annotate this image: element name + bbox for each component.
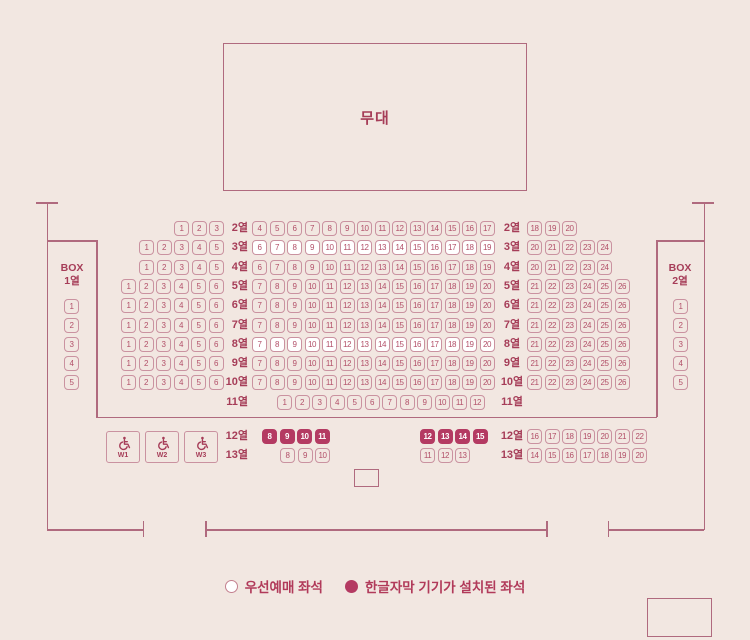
wheelchair-icon [154, 436, 171, 451]
stage: 무대 [223, 43, 527, 191]
seat-7-18[interactable]: 18 [445, 318, 460, 333]
seat-8-3[interactable]: 3 [156, 337, 171, 352]
seat-group: 212223242526 [527, 337, 630, 352]
seat-3-8[interactable]: 8 [287, 240, 302, 255]
seat-4-11[interactable]: 11 [340, 260, 355, 275]
seat-10-13[interactable]: 13 [357, 375, 372, 390]
seat-4-7[interactable]: 7 [270, 260, 285, 275]
seat-10-11[interactable]: 11 [322, 375, 337, 390]
seat-9-16[interactable]: 16 [410, 356, 425, 371]
wheelchair-seat-w1[interactable]: W1 [106, 431, 140, 463]
seat-row-8: 8열8열123456789101112131415161718192021222… [0, 337, 750, 352]
seat-7-5[interactable]: 5 [191, 318, 206, 333]
seat-11-8[interactable]: 8 [400, 395, 415, 410]
seat-5-7[interactable]: 7 [252, 279, 267, 294]
wheelchair-seats: W1W2W3 [0, 431, 750, 463]
row-label-right-2: 2열 [498, 221, 526, 236]
seat-8-5[interactable]: 5 [191, 337, 206, 352]
seat-11-7[interactable]: 7 [382, 395, 397, 410]
seat-4-3[interactable]: 3 [174, 260, 189, 275]
seat-7-8[interactable]: 8 [270, 318, 285, 333]
seat-6-17[interactable]: 17 [427, 298, 442, 313]
priority-seat-icon [225, 580, 238, 593]
seat-6-8[interactable]: 8 [270, 298, 285, 313]
seat-6-14[interactable]: 14 [375, 298, 390, 313]
seat-6-7[interactable]: 7 [252, 298, 267, 313]
wheelchair-seat-label: W2 [157, 452, 168, 459]
seat-5-16[interactable]: 16 [410, 279, 425, 294]
seat-11-5[interactable]: 5 [347, 395, 362, 410]
wall-bottom-center [205, 529, 546, 531]
seat-7-23[interactable]: 23 [562, 318, 577, 333]
seat-10-3[interactable]: 3 [156, 375, 171, 390]
wall-bottom-right [608, 529, 704, 531]
seat-10-1[interactable]: 1 [121, 375, 136, 390]
seat-10-25[interactable]: 25 [597, 375, 612, 390]
seat-10-24[interactable]: 24 [580, 375, 595, 390]
seat-4-19[interactable]: 19 [480, 260, 495, 275]
seat-8-20[interactable]: 20 [480, 337, 495, 352]
seat-4-9[interactable]: 9 [305, 260, 320, 275]
seat-group: 123456 [121, 356, 224, 371]
seat-6-24[interactable]: 24 [580, 298, 595, 313]
seat-7-4[interactable]: 4 [174, 318, 189, 333]
seat-7-26[interactable]: 26 [615, 318, 630, 333]
seat-11-9[interactable]: 9 [417, 395, 432, 410]
seat-10-23[interactable]: 23 [562, 375, 577, 390]
seat-6-21[interactable]: 21 [527, 298, 542, 313]
seat-6-9[interactable]: 9 [287, 298, 302, 313]
seat-4-23[interactable]: 23 [580, 260, 595, 275]
seat-2-20[interactable]: 20 [562, 221, 577, 236]
seat-3-21[interactable]: 21 [545, 240, 560, 255]
seat-4-1[interactable]: 1 [139, 260, 154, 275]
seat-10-7[interactable]: 7 [252, 375, 267, 390]
wheelchair-seat-label: W1 [118, 452, 129, 459]
legend: 우선예매 좌석 한글자막 기기가 설치된 좌석 [0, 576, 750, 596]
row-label-right-6: 6열 [498, 298, 526, 313]
seat-2-3[interactable]: 3 [209, 221, 224, 236]
seat-7-12[interactable]: 12 [340, 318, 355, 333]
seat-row-10: 10열10열1234567891011121314151617181920212… [0, 375, 750, 390]
seat-10-5[interactable]: 5 [191, 375, 206, 390]
seat-9-12[interactable]: 12 [340, 356, 355, 371]
seat-6-3[interactable]: 3 [156, 298, 171, 313]
seat-10-9[interactable]: 9 [287, 375, 302, 390]
seat-11-10[interactable]: 10 [435, 395, 450, 410]
seat-4-6[interactable]: 6 [252, 260, 267, 275]
seat-group: 181920 [527, 221, 577, 236]
seat-5-21[interactable]: 21 [527, 279, 542, 294]
seat-7-21[interactable]: 21 [527, 318, 542, 333]
seat-5-8[interactable]: 8 [270, 279, 285, 294]
wall-tick-3 [546, 521, 548, 537]
seat-6-1[interactable]: 1 [121, 298, 136, 313]
seat-3-16[interactable]: 16 [427, 240, 442, 255]
seat-10-8[interactable]: 8 [270, 375, 285, 390]
seat-5-10[interactable]: 10 [305, 279, 320, 294]
seat-6-26[interactable]: 26 [615, 298, 630, 313]
seat-2-18[interactable]: 18 [527, 221, 542, 236]
seat-5-2[interactable]: 2 [139, 279, 154, 294]
seat-group: 123 [174, 221, 224, 236]
seat-5-17[interactable]: 17 [427, 279, 442, 294]
seat-row-6: 6열6열123456789101112131415161718192021222… [0, 298, 750, 313]
seat-8-15[interactable]: 15 [392, 337, 407, 352]
seat-6-5[interactable]: 5 [191, 298, 206, 313]
seat-7-3[interactable]: 3 [156, 318, 171, 333]
seat-9-14[interactable]: 14 [375, 356, 390, 371]
seat-4-12[interactable]: 12 [357, 260, 372, 275]
seat-9-18[interactable]: 18 [445, 356, 460, 371]
wall-bottom-left [47, 529, 143, 531]
seat-5-9[interactable]: 9 [287, 279, 302, 294]
seat-8-6[interactable]: 6 [209, 337, 224, 352]
seat-10-2[interactable]: 2 [139, 375, 154, 390]
seat-3-5[interactable]: 5 [209, 240, 224, 255]
seat-4-21[interactable]: 21 [545, 260, 560, 275]
wall-right-top-tick [692, 202, 714, 204]
seat-10-4[interactable]: 4 [174, 375, 189, 390]
legend-subtitle-device: 한글자막 기기가 설치된 좌석 [345, 576, 525, 596]
seat-9-20[interactable]: 20 [480, 356, 495, 371]
seat-3-20[interactable]: 20 [527, 240, 542, 255]
seat-6-10[interactable]: 10 [305, 298, 320, 313]
seat-3-3[interactable]: 3 [174, 240, 189, 255]
seat-9-23[interactable]: 23 [562, 356, 577, 371]
seat-7-16[interactable]: 16 [410, 318, 425, 333]
seat-5-18[interactable]: 18 [445, 279, 460, 294]
seat-5-25[interactable]: 25 [597, 279, 612, 294]
seat-5-23[interactable]: 23 [562, 279, 577, 294]
console-marker [354, 469, 379, 487]
legend-subtitle-label: 한글자막 기기가 설치된 좌석 [365, 576, 525, 596]
seat-group: 7891011121314151617181920 [252, 279, 495, 294]
seat-10-10[interactable]: 10 [305, 375, 320, 390]
seat-7-13[interactable]: 13 [357, 318, 372, 333]
seat-8-18[interactable]: 18 [445, 337, 460, 352]
seat-3-23[interactable]: 23 [580, 240, 595, 255]
seat-10-15[interactable]: 15 [392, 375, 407, 390]
seat-9-4[interactable]: 4 [174, 356, 189, 371]
seat-5-11[interactable]: 11 [322, 279, 337, 294]
seat-6-19[interactable]: 19 [462, 298, 477, 313]
seat-group: 123456 [121, 375, 224, 390]
seat-6-15[interactable]: 15 [392, 298, 407, 313]
seat-3-10[interactable]: 10 [322, 240, 337, 255]
seat-4-10[interactable]: 10 [322, 260, 337, 275]
seat-4-2[interactable]: 2 [157, 260, 172, 275]
seat-6-23[interactable]: 23 [562, 298, 577, 313]
seat-9-13[interactable]: 13 [357, 356, 372, 371]
seat-10-26[interactable]: 26 [615, 375, 630, 390]
seat-7-20[interactable]: 20 [480, 318, 495, 333]
seat-group: 12345 [139, 240, 224, 255]
seat-5-5[interactable]: 5 [191, 279, 206, 294]
seat-3-18[interactable]: 18 [462, 240, 477, 255]
seat-8-24[interactable]: 24 [580, 337, 595, 352]
seat-8-10[interactable]: 10 [305, 337, 320, 352]
seat-6-13[interactable]: 13 [357, 298, 372, 313]
wheelchair-seat-w3[interactable]: W3 [184, 431, 218, 463]
seat-8-14[interactable]: 14 [375, 337, 390, 352]
seat-8-1[interactable]: 1 [121, 337, 136, 352]
seat-group: 678910111213141516171819 [252, 240, 495, 255]
seat-9-17[interactable]: 17 [427, 356, 442, 371]
seat-9-24[interactable]: 24 [580, 356, 595, 371]
seat-3-1[interactable]: 1 [139, 240, 154, 255]
legend-priority-label: 우선예매 좌석 [245, 576, 323, 596]
seat-7-19[interactable]: 19 [462, 318, 477, 333]
seat-11-3[interactable]: 3 [312, 395, 327, 410]
seat-4-14[interactable]: 14 [392, 260, 407, 275]
seat-5-3[interactable]: 3 [156, 279, 171, 294]
seat-2-17[interactable]: 17 [480, 221, 495, 236]
seat-5-4[interactable]: 4 [174, 279, 189, 294]
seat-4-24[interactable]: 24 [597, 260, 612, 275]
seat-8-11[interactable]: 11 [322, 337, 337, 352]
seat-6-6[interactable]: 6 [209, 298, 224, 313]
seat-group: 12345 [139, 260, 224, 275]
seat-8-9[interactable]: 9 [287, 337, 302, 352]
seat-9-19[interactable]: 19 [462, 356, 477, 371]
seat-8-19[interactable]: 19 [462, 337, 477, 352]
seat-9-11[interactable]: 11 [322, 356, 337, 371]
seat-10-19[interactable]: 19 [462, 375, 477, 390]
seat-5-19[interactable]: 19 [462, 279, 477, 294]
seat-2-4[interactable]: 4 [252, 221, 267, 236]
seat-9-7[interactable]: 7 [252, 356, 267, 371]
seat-4-5[interactable]: 5 [209, 260, 224, 275]
seat-9-26[interactable]: 26 [615, 356, 630, 371]
seat-4-20[interactable]: 20 [527, 260, 542, 275]
seat-2-6[interactable]: 6 [287, 221, 302, 236]
seat-5-13[interactable]: 13 [357, 279, 372, 294]
seat-row-4: 4열4열123456789101112131415161718192021222… [0, 260, 750, 275]
seat-10-6[interactable]: 6 [209, 375, 224, 390]
seat-8-22[interactable]: 22 [545, 337, 560, 352]
seat-6-25[interactable]: 25 [597, 298, 612, 313]
seat-8-8[interactable]: 8 [270, 337, 285, 352]
seat-4-18[interactable]: 18 [462, 260, 477, 275]
seat-6-18[interactable]: 18 [445, 298, 460, 313]
seat-2-15[interactable]: 15 [445, 221, 460, 236]
wall-tick-1 [143, 521, 145, 537]
seat-10-16[interactable]: 16 [410, 375, 425, 390]
seat-group: 212223242526 [527, 375, 630, 390]
seat-7-14[interactable]: 14 [375, 318, 390, 333]
seat-9-1[interactable]: 1 [121, 356, 136, 371]
seat-10-20[interactable]: 20 [480, 375, 495, 390]
seat-4-17[interactable]: 17 [445, 260, 460, 275]
seat-group: 7891011121314151617181920 [252, 318, 495, 333]
seat-11-1[interactable]: 1 [277, 395, 292, 410]
seat-11-2[interactable]: 2 [295, 395, 310, 410]
seat-8-17[interactable]: 17 [427, 337, 442, 352]
wheelchair-icon [193, 436, 210, 451]
seat-3-19[interactable]: 19 [480, 240, 495, 255]
seat-7-6[interactable]: 6 [209, 318, 224, 333]
seat-9-25[interactable]: 25 [597, 356, 612, 371]
seat-8-16[interactable]: 16 [410, 337, 425, 352]
wheelchair-seat-w2[interactable]: W2 [145, 431, 179, 463]
seat-2-1[interactable]: 1 [174, 221, 189, 236]
seat-2-5[interactable]: 5 [270, 221, 285, 236]
seat-7-25[interactable]: 25 [597, 318, 612, 333]
seat-8-2[interactable]: 2 [139, 337, 154, 352]
seat-5-26[interactable]: 26 [615, 279, 630, 294]
seat-2-10[interactable]: 10 [357, 221, 372, 236]
seat-4-8[interactable]: 8 [287, 260, 302, 275]
seat-9-9[interactable]: 9 [287, 356, 302, 371]
seat-8-23[interactable]: 23 [562, 337, 577, 352]
wheelchair-seat-label: W3 [196, 452, 207, 459]
seat-group: 212223242526 [527, 356, 630, 371]
seat-2-11[interactable]: 11 [375, 221, 390, 236]
seat-5-24[interactable]: 24 [580, 279, 595, 294]
seat-9-21[interactable]: 21 [527, 356, 542, 371]
seat-group: 212223242526 [527, 279, 630, 294]
seat-10-22[interactable]: 22 [545, 375, 560, 390]
seat-5-1[interactable]: 1 [121, 279, 136, 294]
seat-7-11[interactable]: 11 [322, 318, 337, 333]
seat-5-20[interactable]: 20 [480, 279, 495, 294]
seat-group: 123456789101112 [277, 395, 485, 410]
seat-2-13[interactable]: 13 [410, 221, 425, 236]
seat-6-2[interactable]: 2 [139, 298, 154, 313]
seat-10-12[interactable]: 12 [340, 375, 355, 390]
seat-5-6[interactable]: 6 [209, 279, 224, 294]
seat-3-13[interactable]: 13 [375, 240, 390, 255]
seat-8-7[interactable]: 7 [252, 337, 267, 352]
seat-7-7[interactable]: 7 [252, 318, 267, 333]
seat-3-12[interactable]: 12 [357, 240, 372, 255]
seat-group: 212223242526 [527, 318, 630, 333]
seat-6-20[interactable]: 20 [480, 298, 495, 313]
seat-2-8[interactable]: 8 [322, 221, 337, 236]
seat-11-12[interactable]: 12 [470, 395, 485, 410]
seat-7-9[interactable]: 9 [287, 318, 302, 333]
row-label-right-7: 7열 [498, 318, 526, 333]
seat-4-4[interactable]: 4 [192, 260, 207, 275]
seat-row-3: 3열3열123456789101112131415161718192021222… [0, 240, 750, 255]
seat-4-22[interactable]: 22 [562, 260, 577, 275]
seat-9-22[interactable]: 22 [545, 356, 560, 371]
seat-7-1[interactable]: 1 [121, 318, 136, 333]
seat-7-17[interactable]: 17 [427, 318, 442, 333]
seat-2-12[interactable]: 12 [392, 221, 407, 236]
seat-8-25[interactable]: 25 [597, 337, 612, 352]
seat-group: 123456 [121, 318, 224, 333]
seat-9-5[interactable]: 5 [191, 356, 206, 371]
seat-7-24[interactable]: 24 [580, 318, 595, 333]
seat-7-15[interactable]: 15 [392, 318, 407, 333]
seat-8-26[interactable]: 26 [615, 337, 630, 352]
seat-10-21[interactable]: 21 [527, 375, 542, 390]
seat-group: 123456 [121, 298, 224, 313]
seat-group: 7891011121314151617181920 [252, 356, 495, 371]
seat-2-16[interactable]: 16 [462, 221, 477, 236]
seat-8-12[interactable]: 12 [340, 337, 355, 352]
seat-3-4[interactable]: 4 [192, 240, 207, 255]
seat-row-11: 11열11열123456789101112 [0, 395, 750, 410]
seat-9-6[interactable]: 6 [209, 356, 224, 371]
seat-8-4[interactable]: 4 [174, 337, 189, 352]
seat-3-2[interactable]: 2 [157, 240, 172, 255]
seat-2-2[interactable]: 2 [192, 221, 207, 236]
seat-6-4[interactable]: 4 [174, 298, 189, 313]
seat-5-14[interactable]: 14 [375, 279, 390, 294]
seat-2-9[interactable]: 9 [340, 221, 355, 236]
seat-10-17[interactable]: 17 [427, 375, 442, 390]
seat-10-14[interactable]: 14 [375, 375, 390, 390]
row-label-right-9: 9열 [498, 356, 526, 371]
seat-3-17[interactable]: 17 [445, 240, 460, 255]
seat-group: 7891011121314151617181920 [252, 375, 495, 390]
seat-2-19[interactable]: 19 [545, 221, 560, 236]
seat-3-15[interactable]: 15 [410, 240, 425, 255]
seat-10-18[interactable]: 18 [445, 375, 460, 390]
seat-6-11[interactable]: 11 [322, 298, 337, 313]
seat-group: 212223242526 [527, 298, 630, 313]
seat-4-13[interactable]: 13 [375, 260, 390, 275]
seat-3-22[interactable]: 22 [562, 240, 577, 255]
seat-7-22[interactable]: 22 [545, 318, 560, 333]
seat-4-16[interactable]: 16 [427, 260, 442, 275]
seat-9-3[interactable]: 3 [156, 356, 171, 371]
seat-5-12[interactable]: 12 [340, 279, 355, 294]
seat-3-7[interactable]: 7 [270, 240, 285, 255]
seat-3-9[interactable]: 9 [305, 240, 320, 255]
row-label-right-10: 10열 [498, 375, 526, 390]
seat-9-2[interactable]: 2 [139, 356, 154, 371]
seat-6-12[interactable]: 12 [340, 298, 355, 313]
wheelchair-icon [115, 436, 132, 451]
seat-2-14[interactable]: 14 [427, 221, 442, 236]
seat-3-14[interactable]: 14 [392, 240, 407, 255]
seat-group: 2021222324 [527, 260, 612, 275]
seat-4-15[interactable]: 15 [410, 260, 425, 275]
seat-6-16[interactable]: 16 [410, 298, 425, 313]
seat-row-2: 2열2열1234567891011121314151617181920 [0, 221, 750, 236]
seat-group: 123456 [121, 337, 224, 352]
seat-11-11[interactable]: 11 [452, 395, 467, 410]
seat-row-9: 9열9열123456789101112131415161718192021222… [0, 356, 750, 371]
seat-3-6[interactable]: 6 [252, 240, 267, 255]
seat-3-11[interactable]: 11 [340, 240, 355, 255]
seat-selection-map: 무대 BOX 1열 12345 BOX 2열 12345 2열2열1234567… [0, 0, 750, 640]
seat-group: 678910111213141516171819 [252, 260, 495, 275]
seat-8-21[interactable]: 21 [527, 337, 542, 352]
seat-6-22[interactable]: 22 [545, 298, 560, 313]
row-label-left-11: 11열 [210, 395, 248, 410]
seat-3-24[interactable]: 24 [597, 240, 612, 255]
seat-5-22[interactable]: 22 [545, 279, 560, 294]
seat-9-8[interactable]: 8 [270, 356, 285, 371]
seat-9-10[interactable]: 10 [305, 356, 320, 371]
seat-2-7[interactable]: 7 [305, 221, 320, 236]
seat-7-10[interactable]: 10 [305, 318, 320, 333]
seat-11-4[interactable]: 4 [330, 395, 345, 410]
seat-9-15[interactable]: 15 [392, 356, 407, 371]
seat-8-13[interactable]: 13 [357, 337, 372, 352]
seat-row-7: 7열7열123456789101112131415161718192021222… [0, 318, 750, 333]
seat-7-2[interactable]: 2 [139, 318, 154, 333]
seat-group: 2021222324 [527, 240, 612, 255]
seat-11-6[interactable]: 6 [365, 395, 380, 410]
seat-5-15[interactable]: 15 [392, 279, 407, 294]
row-label-right-8: 8열 [498, 337, 526, 352]
